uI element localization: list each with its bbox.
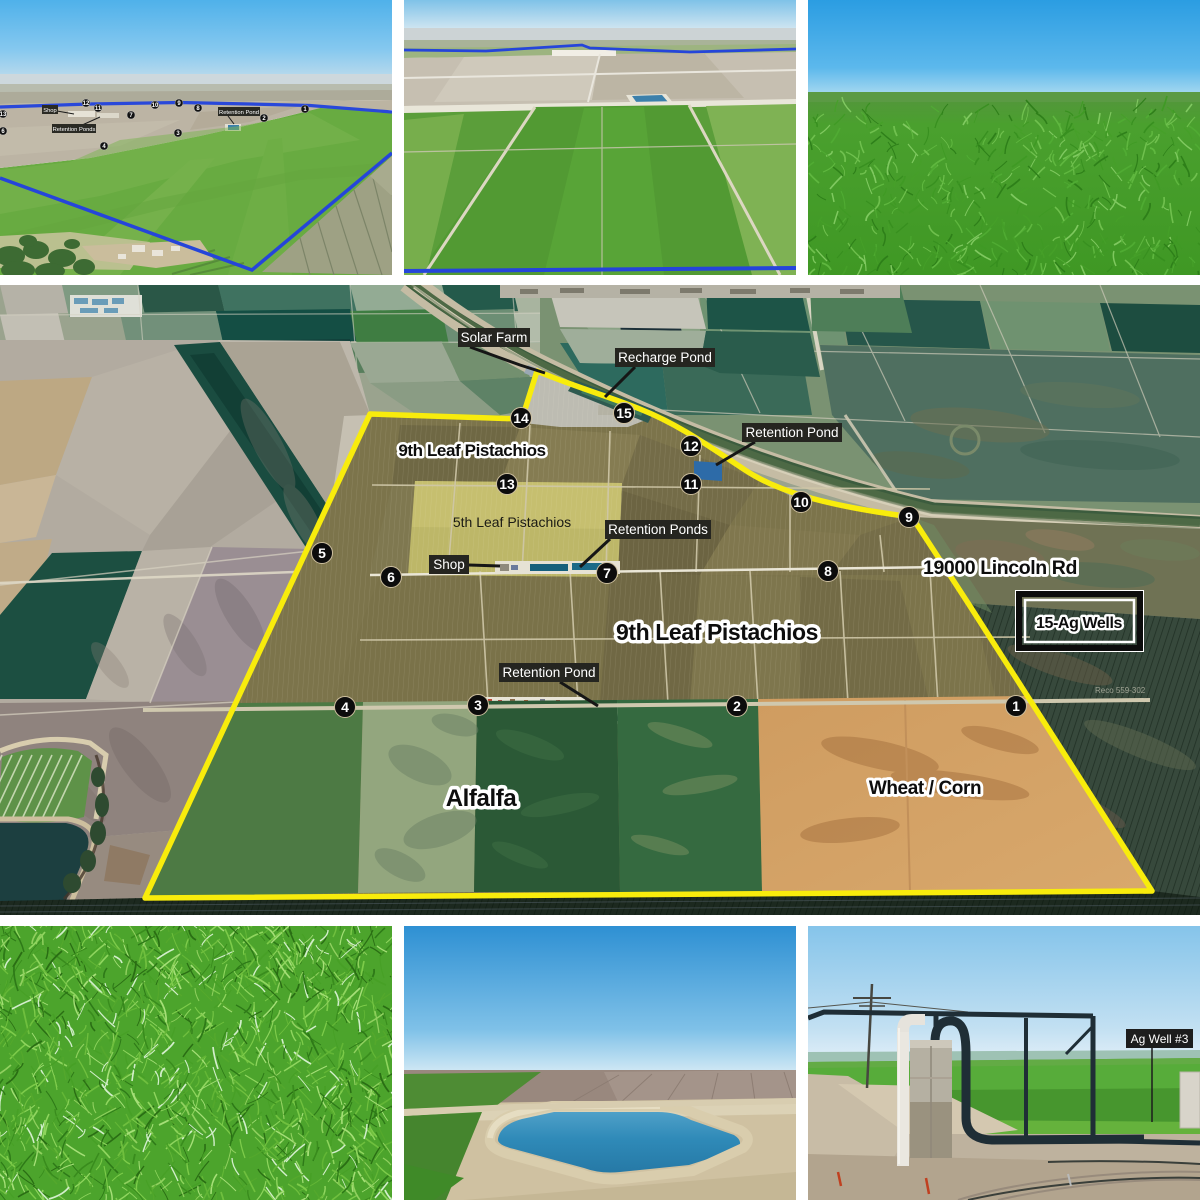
svg-text:1: 1 bbox=[1012, 698, 1020, 714]
svg-text:Shop: Shop bbox=[43, 108, 57, 114]
svg-text:11: 11 bbox=[684, 476, 699, 492]
svg-text:15-Ag Wells: 15-Ag Wells bbox=[1036, 615, 1123, 632]
svg-text:Retention Ponds: Retention Ponds bbox=[608, 522, 708, 537]
svg-text:6: 6 bbox=[387, 569, 395, 585]
svg-text:15: 15 bbox=[616, 405, 632, 421]
svg-text:10: 10 bbox=[152, 103, 159, 109]
svg-text:12: 12 bbox=[683, 438, 699, 454]
svg-text:14: 14 bbox=[513, 410, 529, 426]
svg-text:Recharge Pond: Recharge Pond bbox=[618, 350, 712, 365]
svg-text:Shop: Shop bbox=[433, 557, 465, 572]
svg-text:9th Leaf Pistachios: 9th Leaf Pistachios bbox=[398, 441, 545, 460]
svg-text:13: 13 bbox=[0, 112, 7, 118]
svg-text:19000 Lincoln Rd: 19000 Lincoln Rd bbox=[923, 557, 1077, 579]
svg-text:Ag Well #3: Ag Well #3 bbox=[1131, 1032, 1189, 1046]
svg-text:Solar Farm: Solar Farm bbox=[461, 330, 528, 345]
svg-text:11: 11 bbox=[95, 106, 102, 112]
svg-text:3: 3 bbox=[474, 697, 482, 713]
svg-text:Retention Pond: Retention Pond bbox=[745, 425, 838, 440]
svg-text:13: 13 bbox=[499, 476, 515, 492]
svg-text:9: 9 bbox=[905, 509, 913, 525]
svg-text:2: 2 bbox=[733, 698, 741, 714]
svg-text:Retention Ponds: Retention Ponds bbox=[53, 127, 96, 133]
svg-text:5th Leaf Pistachios: 5th Leaf Pistachios bbox=[453, 514, 571, 530]
svg-text:Reco 559-302: Reco 559-302 bbox=[1095, 686, 1146, 695]
svg-text:Wheat / Corn: Wheat / Corn bbox=[869, 778, 981, 799]
svg-text:Retention Pond: Retention Pond bbox=[219, 110, 259, 116]
svg-text:Retention Pond: Retention Pond bbox=[502, 665, 595, 680]
svg-text:Alfalfa: Alfalfa bbox=[446, 785, 518, 812]
svg-text:10: 10 bbox=[793, 494, 809, 510]
svg-text:7: 7 bbox=[603, 565, 611, 581]
svg-text:5: 5 bbox=[318, 545, 326, 561]
svg-text:4: 4 bbox=[341, 699, 349, 715]
svg-text:12: 12 bbox=[83, 101, 90, 107]
svg-text:8: 8 bbox=[824, 563, 832, 579]
svg-text:9th Leaf Pistachios: 9th Leaf Pistachios bbox=[616, 619, 818, 645]
